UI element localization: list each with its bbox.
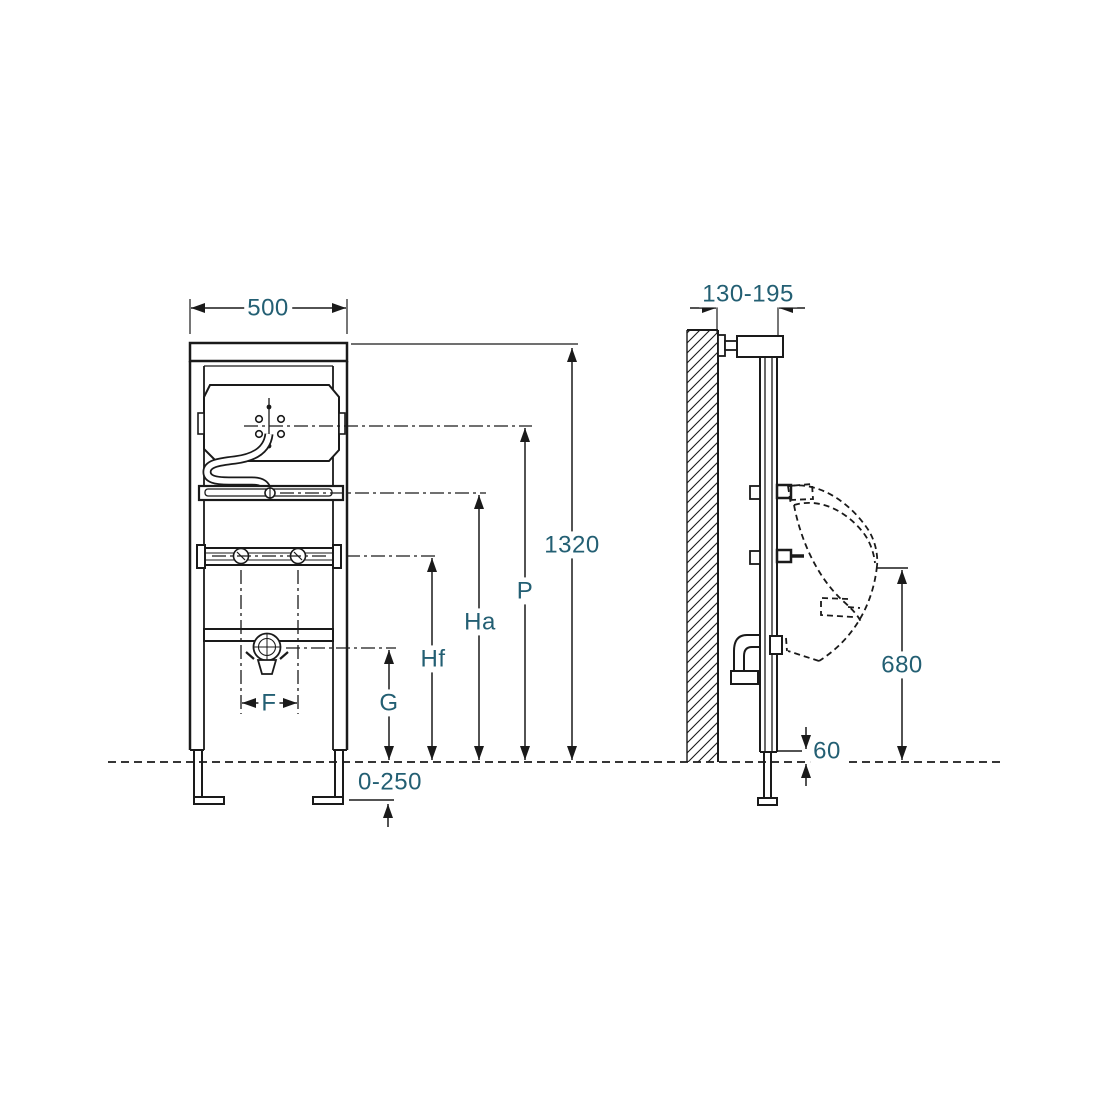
dimension-label-depth-range: 130-195 [699,280,797,307]
right-foot-plate [313,797,343,804]
dimension-label-width: 500 [244,294,292,321]
dimension-label-ha: Ha [461,608,499,635]
dimension-label-hf: Hf [418,645,449,672]
back-clip [750,486,760,499]
bolt-rail-cap-left [197,545,205,568]
bolt-rail-cap-right [333,545,341,568]
panel-hole [278,431,285,438]
front-view-centerlines [212,426,532,714]
front-view-frame [190,343,347,804]
dimension-label-p: P [514,577,537,604]
panel-side-tab-left [198,413,204,434]
drain-spigot [258,660,276,674]
p-trap-inner [744,647,760,671]
side-view-dimensions [690,300,908,786]
panel-hole [278,416,285,423]
side-view-frame [718,335,804,805]
p-trap-outer [734,635,760,671]
dimension-label-g: G [376,689,401,716]
side-foot-plate [758,798,777,805]
dimension-label-foot-range: 0-250 [355,768,425,795]
urinal-dashed-outline [786,484,877,661]
side-view-wall [687,330,718,762]
panel-side-tab-right [339,413,345,434]
drawing-stage: 500 1320 P Ha Hf G F 0-250 130-195 680 6… [0,0,1100,1100]
p-trap-socket [731,671,758,684]
dimension-label-rim-height: 680 [878,651,926,678]
drain-bracket [770,636,782,654]
wall-anchor-flange [718,335,725,356]
dimension-label-clearance: 60 [810,737,844,764]
wall-hatch [687,330,718,762]
left-foot-plate [194,797,224,804]
panel-hole [256,416,263,423]
dimension-label-total-height: 1320 [541,531,602,558]
flush-plate-panel [204,385,339,461]
dimension-label-f: F [258,689,279,716]
back-clip [750,551,760,564]
top-bracket [737,336,783,357]
frame-top-bar [190,343,347,361]
panel-hole [256,431,263,438]
urinal-fixing-bolt-lower [777,550,791,562]
wall-anchor-shaft [725,341,737,350]
